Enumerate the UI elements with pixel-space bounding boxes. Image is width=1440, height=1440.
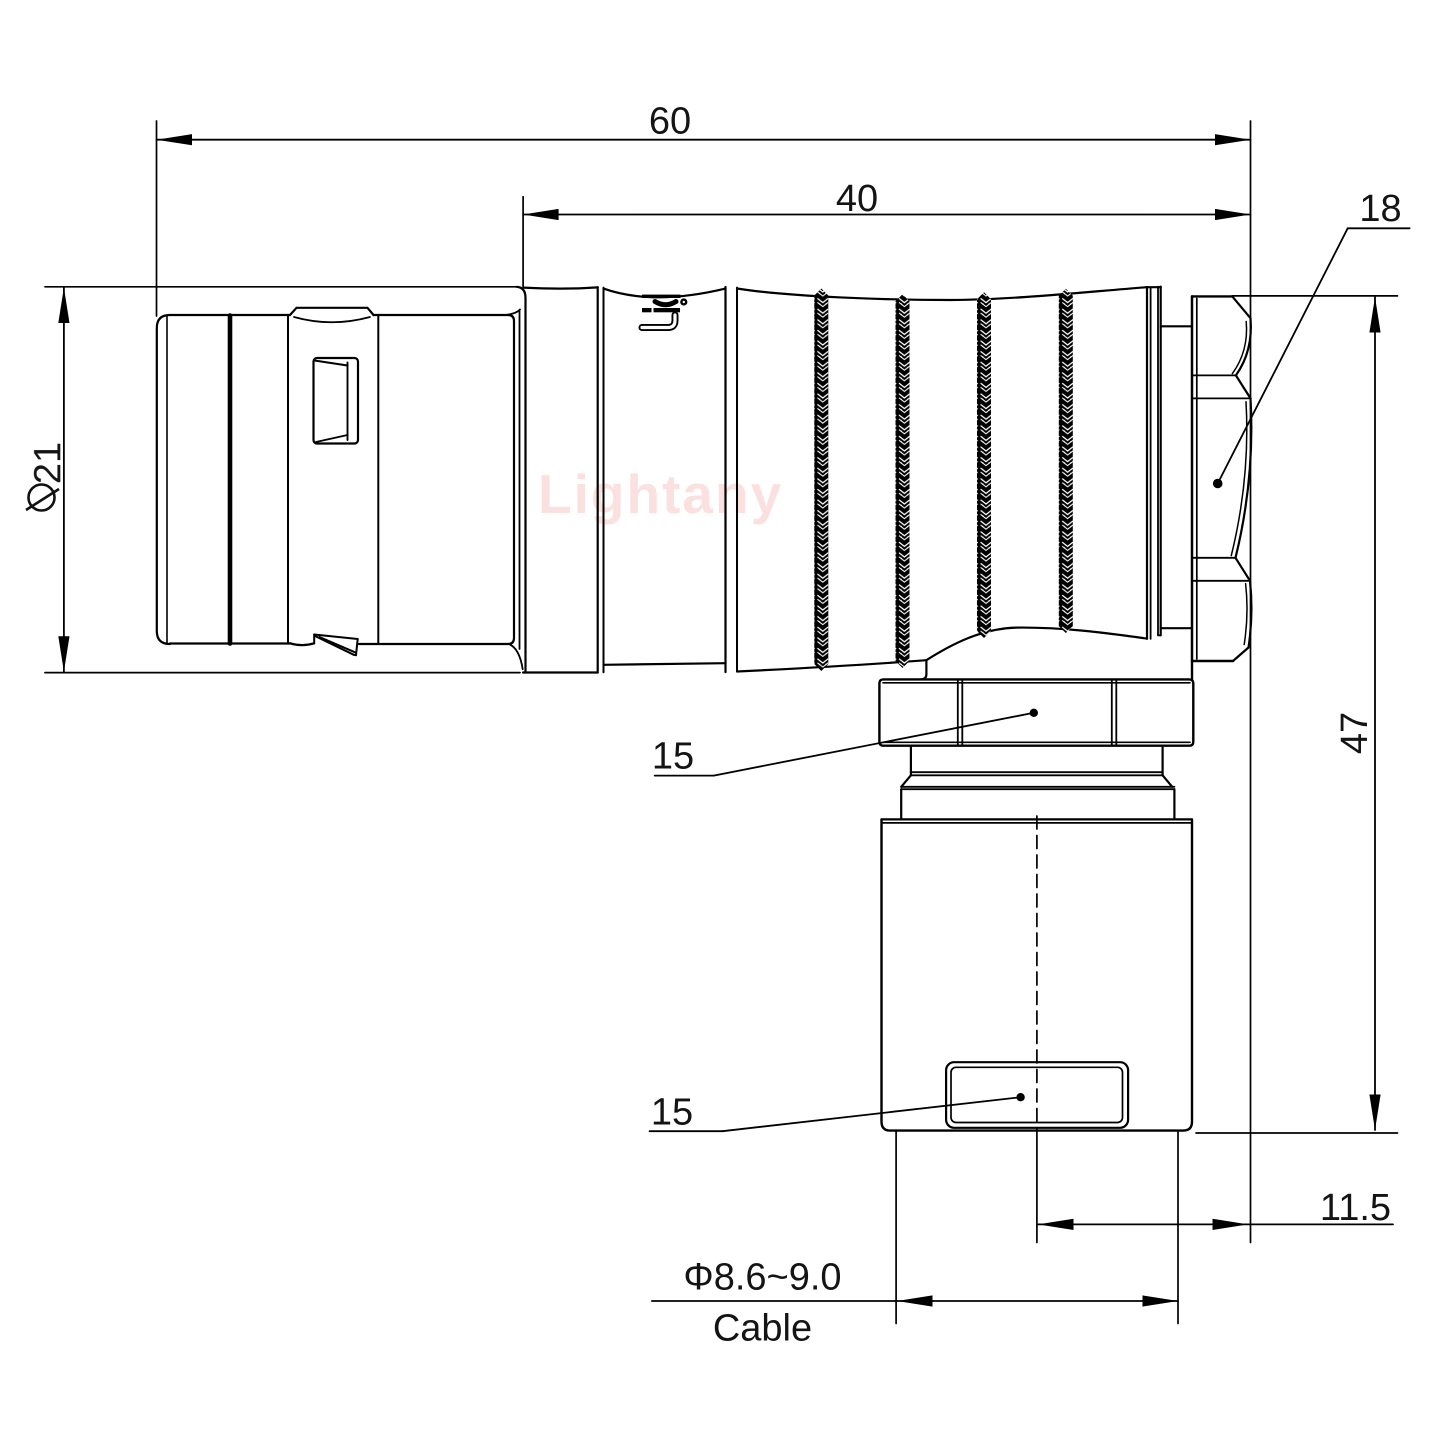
- svg-text:47: 47: [1334, 712, 1376, 754]
- svg-text:15: 15: [651, 1092, 693, 1134]
- svg-text:40: 40: [836, 178, 878, 220]
- svg-text:Φ8.6~9.0: Φ8.6~9.0: [683, 1257, 841, 1299]
- svg-text:Cable: Cable: [713, 1308, 812, 1350]
- svg-text:11.5: 11.5: [1320, 1187, 1391, 1229]
- svg-text:18: 18: [1359, 188, 1401, 230]
- svg-text:15: 15: [652, 736, 694, 778]
- svg-text:60: 60: [649, 101, 691, 143]
- svg-text:Lightany: Lightany: [538, 463, 783, 525]
- svg-text:21: 21: [27, 442, 69, 484]
